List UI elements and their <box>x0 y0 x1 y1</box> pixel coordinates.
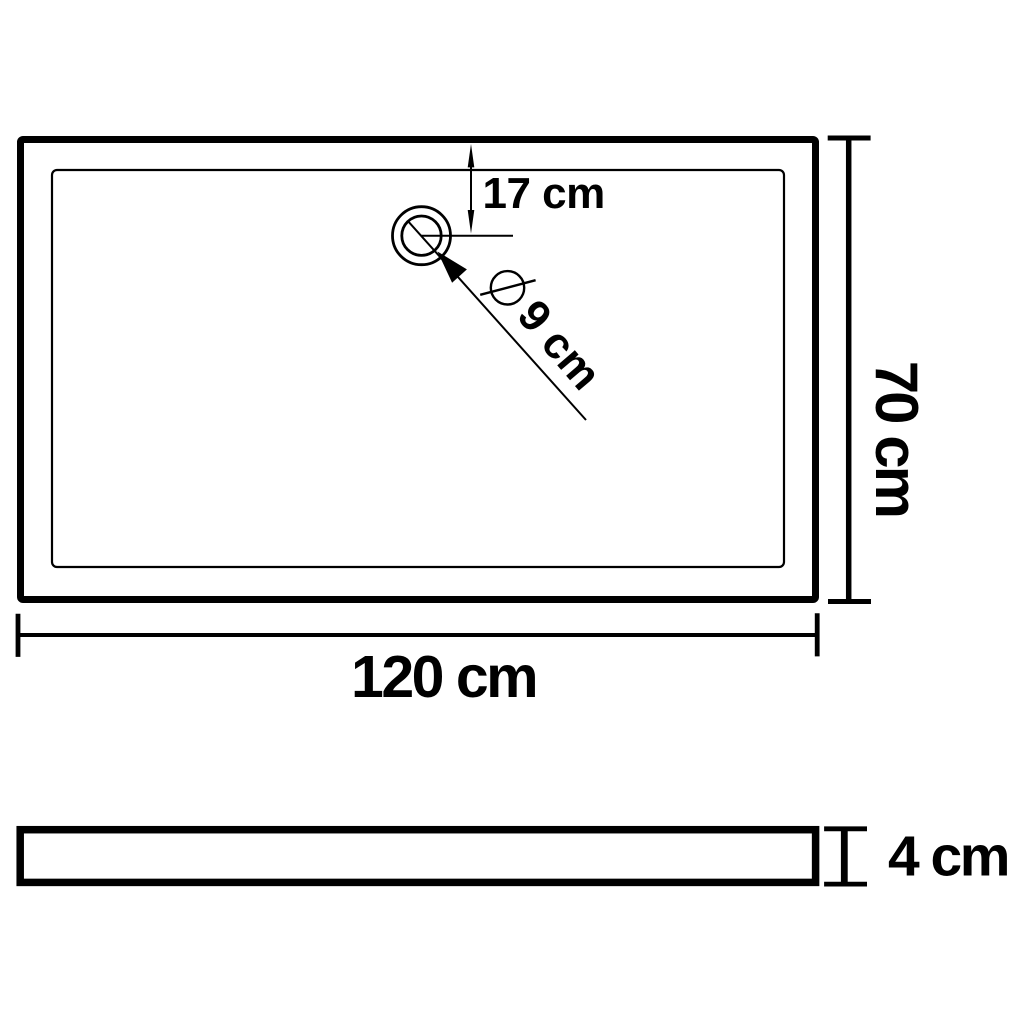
svg-text:120 cm: 120 cm <box>351 644 536 710</box>
svg-text:4 cm: 4 cm <box>888 825 1008 889</box>
svg-text:17 cm: 17 cm <box>483 169 605 218</box>
svg-text:70 cm: 70 cm <box>863 361 930 516</box>
